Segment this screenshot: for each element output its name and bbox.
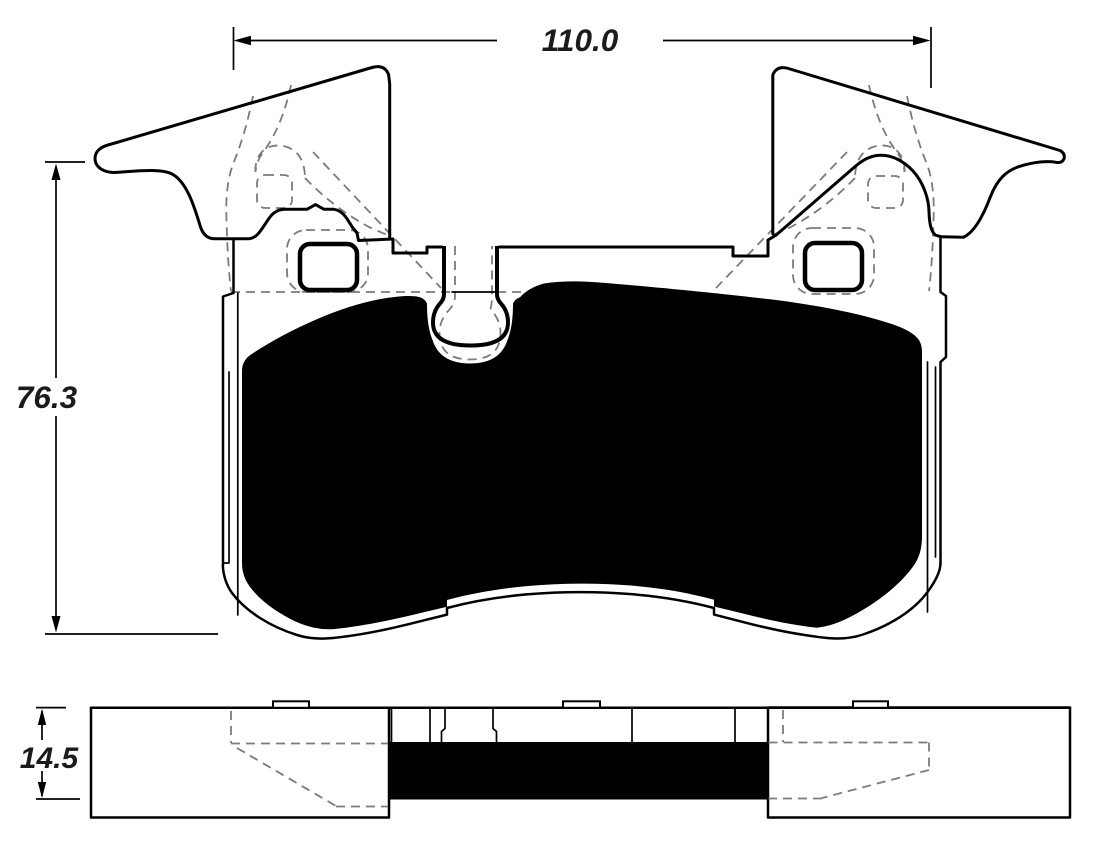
side-right-hidden-wing: [769, 710, 930, 799]
left-funnel-dash-outer: [226, 96, 253, 291]
brake-pad-drawing: 110.0 76.3 14.5: [0, 0, 1096, 841]
right-funnel-dash-outer: [907, 96, 934, 291]
friction-material: [242, 281, 922, 629]
left-diagonal-dash: [313, 152, 441, 288]
side-friction-band: [390, 742, 768, 800]
wear-notch: [433, 246, 508, 346]
side-right-end-block: [768, 708, 1070, 818]
right-diagonal-dash: [716, 152, 847, 288]
front-view: [95, 67, 1064, 639]
height-dimension-label: 76.3: [16, 379, 78, 415]
side-tab-right: [853, 701, 888, 708]
side-view: [91, 701, 1070, 817]
side-tab-center: [563, 701, 600, 708]
right-mounting-hole: [805, 243, 862, 290]
side-left-end-block: [91, 708, 389, 818]
right-ear-dashed-square: [868, 176, 903, 208]
side-left-hidden-wing: [231, 711, 388, 807]
width-dimension-label: 110.0: [542, 22, 619, 58]
left-ear-dashed-square: [257, 175, 292, 208]
left-dome-dash: [255, 145, 305, 178]
side-tab-left: [273, 701, 309, 708]
height-arrow-top: [52, 164, 61, 181]
width-arrow-left: [234, 36, 252, 45]
side-plate-section-lines: [392, 708, 736, 742]
dimension-thickness: 14.5: [20, 708, 80, 799]
height-arrow-bottom: [52, 616, 61, 633]
plate-outline: [114, 68, 1064, 256]
side-notch-section: [442, 708, 497, 742]
thickness-arrow-top: [38, 709, 46, 725]
right-abutment-tab: [941, 238, 947, 563]
technical-drawing-page: 110.0 76.3 14.5: [0, 0, 1096, 841]
left-mounting-hole: [300, 244, 357, 290]
dimension-height: 76.3: [16, 162, 218, 634]
width-arrow-right: [913, 36, 931, 45]
thickness-arrow-bottom: [38, 782, 46, 798]
thickness-dimension-label: 14.5: [20, 742, 80, 775]
